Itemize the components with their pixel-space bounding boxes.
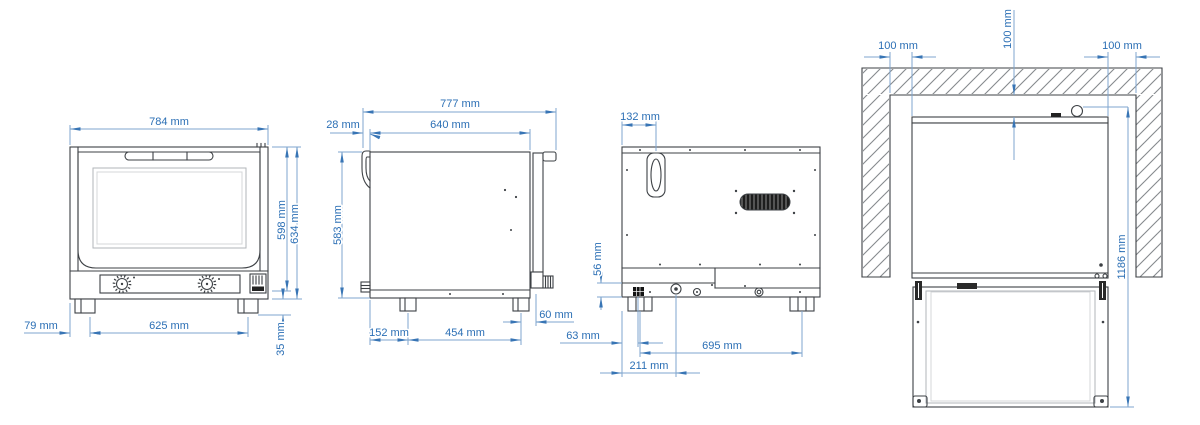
rear-wall — [863, 69, 1161, 94]
rear-switch — [1051, 113, 1061, 117]
dim-install-clearance-left: 100 mm — [878, 40, 918, 52]
door-hinge-left — [915, 281, 922, 300]
door-handle — [125, 152, 213, 160]
back-oven-body — [622, 147, 820, 311]
side-door — [531, 152, 556, 288]
dim-front-width: 784 mm — [149, 116, 189, 128]
front-view: 784 mm 598 mm 634 mm 35 mm 79 mm 625 mm — [24, 116, 302, 356]
open-door-top-view — [913, 281, 1108, 407]
door-hinge-right — [1099, 281, 1106, 300]
left-wall — [863, 95, 889, 277]
small-fitting-right — [755, 288, 763, 296]
dim-back-edge-to-connector: 211 mm — [630, 360, 669, 372]
dim-back-feet-spacing: 695 mm — [702, 340, 742, 352]
dim-install-clearance-rear: 100 mm — [1002, 9, 1014, 49]
back-view: 132 mm 56 mm 63 mm 211 mm 695 mm — [560, 111, 820, 377]
front-feet — [75, 299, 258, 313]
dim-front-total-height: 634 mm — [289, 204, 301, 244]
indicator-display — [250, 274, 266, 293]
dim-back-base-panel-height: 56 mm — [592, 242, 604, 276]
side-view: 777 mm 640 mm 28 mm 583 mm 152 mm 454 mm… — [326, 98, 574, 345]
dim-side-body-depth: 640 mm — [430, 119, 470, 131]
dim-side-flue-protrusion: 28 mm — [326, 119, 360, 131]
front-oven-body — [70, 144, 268, 314]
back-feet — [628, 297, 814, 311]
dim-front-body-height: 598 mm — [276, 200, 288, 240]
dim-install-depth-door-open: 1186 mm — [1116, 234, 1128, 279]
dim-side-total-depth: 777 mm — [440, 98, 480, 110]
side-door-handle — [543, 152, 556, 161]
small-fitting-left — [694, 289, 701, 296]
flue-pipe — [362, 151, 370, 188]
chimney — [647, 153, 665, 197]
dim-side-body-height: 583 mm — [332, 205, 344, 245]
cable-entry-terminal — [633, 287, 644, 296]
technical-drawing-canvas: 784 mm 598 mm 634 mm 35 mm 79 mm 625 mm — [0, 0, 1200, 425]
dim-back-edge-to-cable: 63 mm — [566, 330, 600, 342]
door-hinge-knob — [543, 276, 553, 288]
side-oven-body — [361, 151, 556, 311]
dim-side-back-to-foot: 152 mm — [369, 327, 409, 339]
rear-connection-stub — [361, 282, 370, 292]
dim-front-feet-spacing: 625 mm — [149, 320, 189, 332]
side-feet — [400, 298, 529, 311]
dim-back-flue-offset: 132 mm — [620, 111, 660, 123]
right-wall — [1136, 95, 1161, 277]
dim-front-edge-to-foot: 79 mm — [24, 320, 58, 332]
dim-side-foot-to-front: 60 mm — [539, 309, 573, 321]
flue-pipe-top — [1072, 106, 1083, 117]
oven-dimensional-drawing: 784 mm 598 mm 634 mm 35 mm 79 mm 625 mm — [0, 0, 1200, 425]
electrical-connector — [671, 284, 681, 294]
dim-front-foot-height: 35 mm — [275, 322, 287, 356]
installation-view: 100 mm 100 mm 100 mm 1186 mm — [862, 9, 1162, 407]
door-latch — [957, 283, 977, 289]
dim-install-clearance-right: 100 mm — [1102, 40, 1142, 52]
open-door-outline — [913, 287, 1108, 407]
dim-side-feet-spacing: 454 mm — [445, 327, 485, 339]
side-body-outline — [370, 152, 530, 298]
oven-top-view — [912, 106, 1108, 279]
